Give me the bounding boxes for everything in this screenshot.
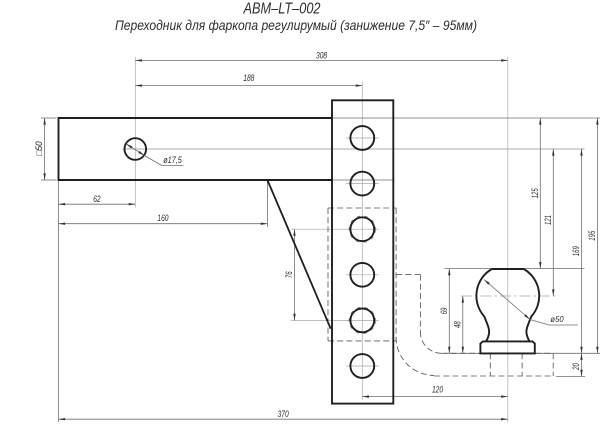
svg-text:АВМ–LT–002: АВМ–LT–002 <box>243 1 321 18</box>
svg-text:160: 160 <box>157 213 169 223</box>
svg-text:20: 20 <box>571 363 581 370</box>
svg-text:Переходник для фаркопа регулир: Переходник для фаркопа регулирумый (зани… <box>115 18 477 33</box>
svg-text:76: 76 <box>284 271 294 278</box>
svg-text:ø50: ø50 <box>550 314 564 324</box>
svg-text:62: 62 <box>93 194 100 204</box>
svg-text:308: 308 <box>316 50 328 60</box>
svg-text:121: 121 <box>543 215 553 225</box>
svg-text:48: 48 <box>453 321 463 328</box>
svg-text:120: 120 <box>432 384 444 394</box>
svg-text:ø17,5: ø17,5 <box>163 155 182 165</box>
svg-text:370: 370 <box>278 409 290 419</box>
svg-text:188: 188 <box>243 73 255 83</box>
svg-text:195: 195 <box>587 231 597 241</box>
svg-text:□50: □50 <box>34 141 44 156</box>
svg-text:169: 169 <box>571 246 581 256</box>
svg-text:69: 69 <box>439 308 449 315</box>
svg-text:125: 125 <box>530 188 540 198</box>
